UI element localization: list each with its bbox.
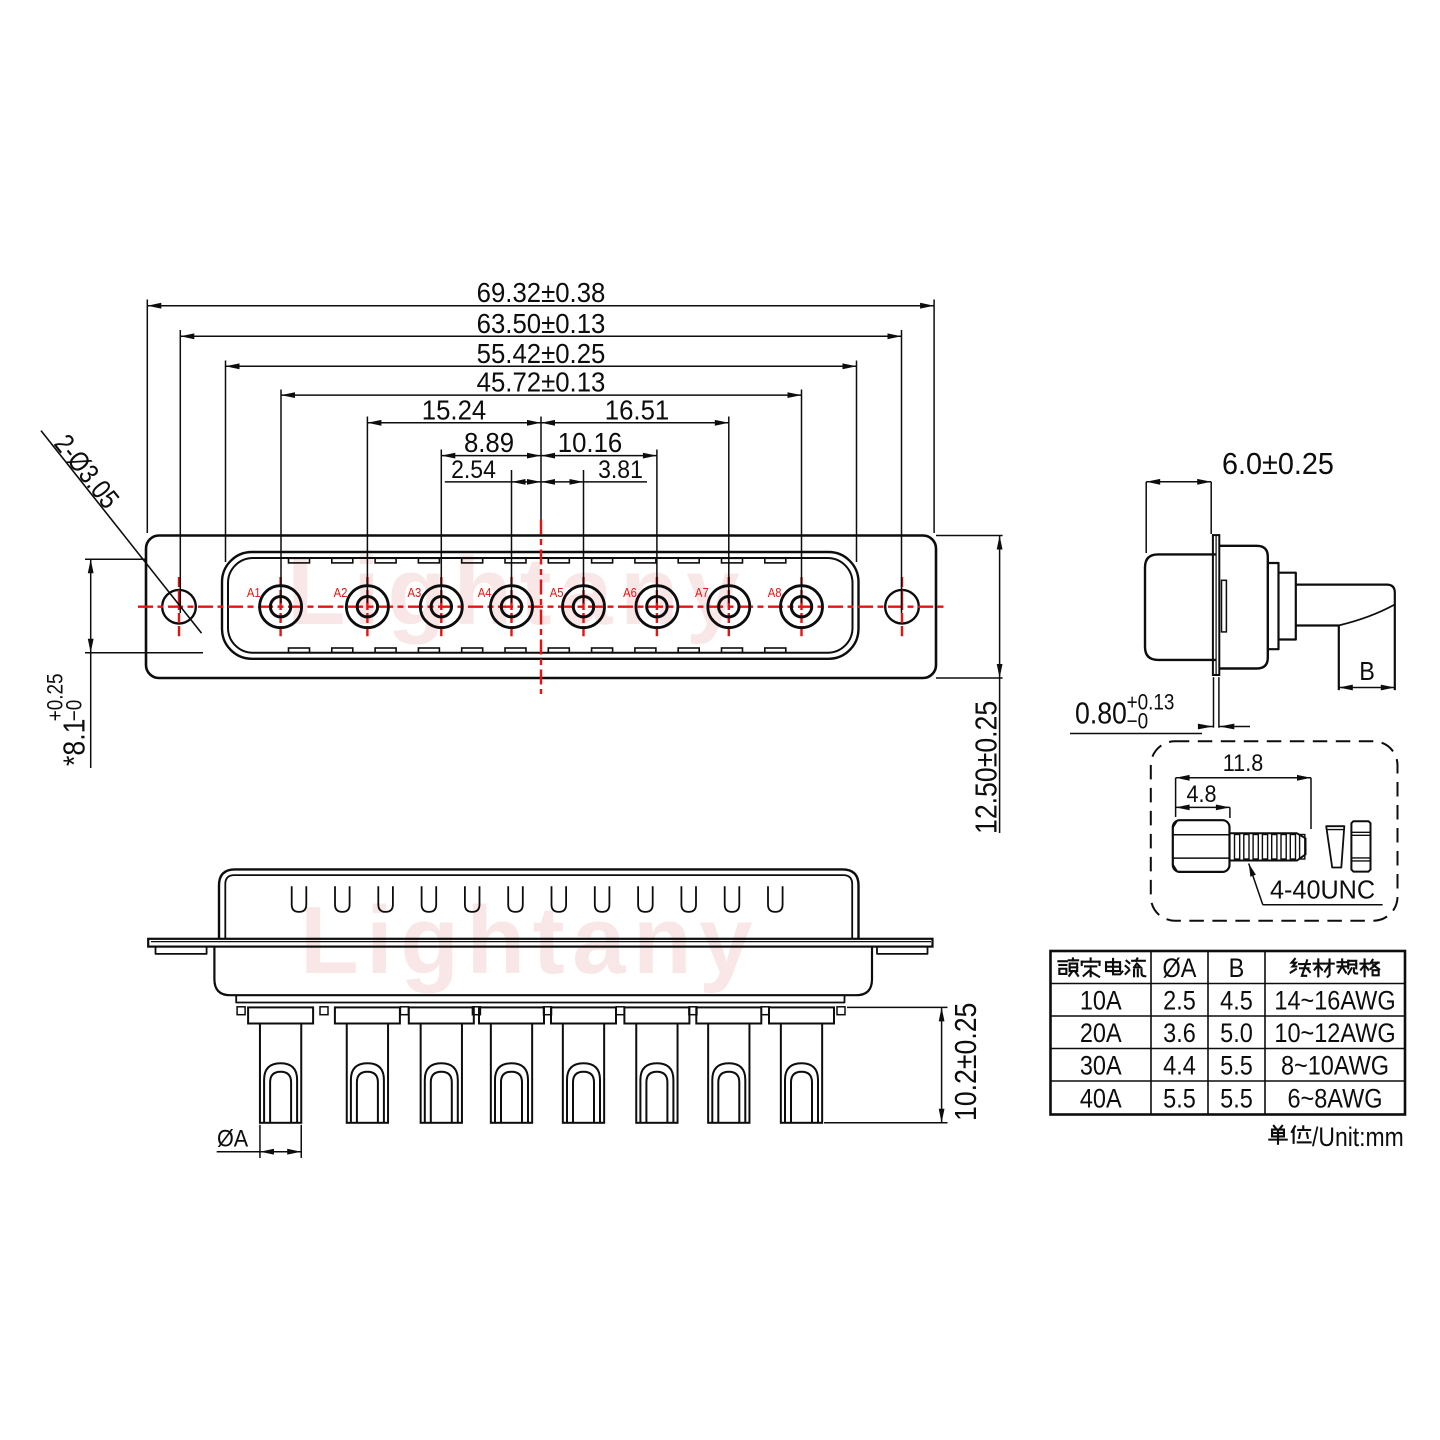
svg-text:A3: A3 (408, 585, 422, 600)
svg-text:5.5: 5.5 (1163, 1084, 1196, 1114)
svg-text:40A: 40A (1080, 1084, 1122, 1114)
svg-text:5.5: 5.5 (1220, 1084, 1253, 1114)
svg-text:A6: A6 (623, 585, 637, 600)
svg-text:5.5: 5.5 (1220, 1051, 1253, 1081)
svg-text:/Unit:mm: /Unit:mm (1312, 1122, 1404, 1152)
svg-text:B: B (1229, 954, 1245, 984)
svg-text:4.8: 4.8 (1186, 780, 1216, 807)
svg-text:*8.1: *8.1 (58, 719, 92, 766)
svg-text:6~8AWG: 6~8AWG (1287, 1084, 1382, 1114)
svg-text:Lightany: Lightany (300, 887, 760, 994)
svg-text:10~12AWG: 10~12AWG (1274, 1019, 1395, 1049)
svg-text:B: B (1359, 658, 1375, 686)
svg-text:20A: 20A (1080, 1019, 1122, 1049)
svg-text:63.50±0.13: 63.50±0.13 (477, 308, 606, 339)
svg-text:12.50±0.25: 12.50±0.25 (970, 701, 1004, 834)
svg-text:3.6: 3.6 (1163, 1019, 1196, 1049)
svg-text:15.24: 15.24 (422, 394, 486, 425)
svg-text:0.80: 0.80 (1075, 697, 1127, 731)
svg-text:+0.13−0: +0.13−0 (1127, 690, 1175, 734)
svg-text:55.42±0.25: 55.42±0.25 (477, 338, 606, 369)
svg-text:A1: A1 (247, 585, 261, 600)
svg-text:2.5: 2.5 (1163, 986, 1196, 1016)
svg-text:ØA: ØA (217, 1124, 249, 1151)
svg-text:6.0±0.25: 6.0±0.25 (1222, 447, 1334, 481)
svg-text:10.2±0.25: 10.2±0.25 (949, 1003, 983, 1121)
svg-text:A7: A7 (695, 585, 709, 600)
svg-text:Lightany: Lightany (287, 538, 747, 645)
svg-text:8.89: 8.89 (464, 427, 514, 458)
svg-text:4-40UNC: 4-40UNC (1270, 876, 1375, 904)
svg-text:10.16: 10.16 (558, 427, 622, 458)
svg-text:ØA: ØA (1163, 954, 1197, 984)
svg-text:11.8: 11.8 (1223, 749, 1263, 776)
svg-text:14~16AWG: 14~16AWG (1274, 986, 1395, 1016)
svg-text:A4: A4 (478, 585, 492, 600)
svg-text:A5: A5 (550, 585, 564, 600)
svg-text:3.81: 3.81 (598, 456, 643, 484)
svg-text:A8: A8 (768, 585, 782, 600)
svg-text:2.54: 2.54 (451, 456, 496, 484)
svg-text:+0.25−0: +0.25−0 (43, 673, 87, 721)
svg-text:10A: 10A (1080, 986, 1122, 1016)
svg-text:4.4: 4.4 (1163, 1051, 1196, 1081)
svg-text:45.72±0.13: 45.72±0.13 (477, 367, 606, 398)
svg-text:30A: 30A (1080, 1051, 1122, 1081)
svg-text:69.32±0.38: 69.32±0.38 (477, 277, 606, 308)
svg-text:8~10AWG: 8~10AWG (1281, 1051, 1389, 1081)
svg-text:4.5: 4.5 (1220, 986, 1253, 1016)
svg-text:16.51: 16.51 (605, 394, 669, 425)
svg-text:A2: A2 (334, 585, 348, 600)
svg-text:5.0: 5.0 (1220, 1019, 1253, 1049)
svg-text:2-Ø3.05: 2-Ø3.05 (48, 429, 125, 514)
